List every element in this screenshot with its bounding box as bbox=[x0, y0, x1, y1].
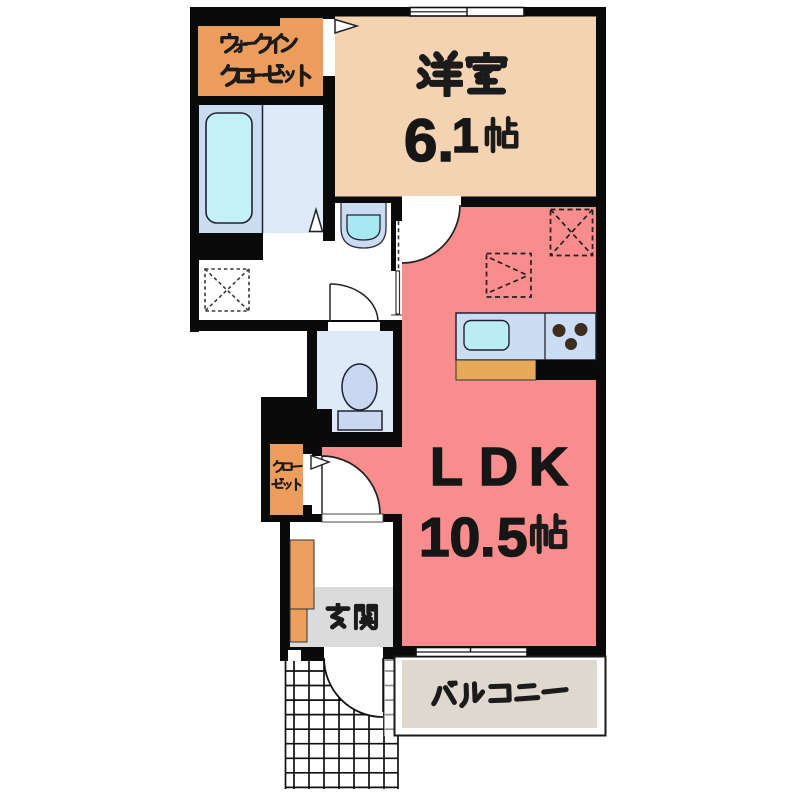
svg-text:K: K bbox=[529, 437, 568, 497]
svg-text:6.: 6. bbox=[404, 107, 454, 174]
svg-text:1: 1 bbox=[452, 110, 479, 163]
svg-text:D: D bbox=[479, 437, 518, 497]
svg-text:5: 5 bbox=[497, 506, 528, 568]
svg-text:L: L bbox=[430, 437, 463, 497]
svg-text:10.: 10. bbox=[419, 506, 495, 568]
